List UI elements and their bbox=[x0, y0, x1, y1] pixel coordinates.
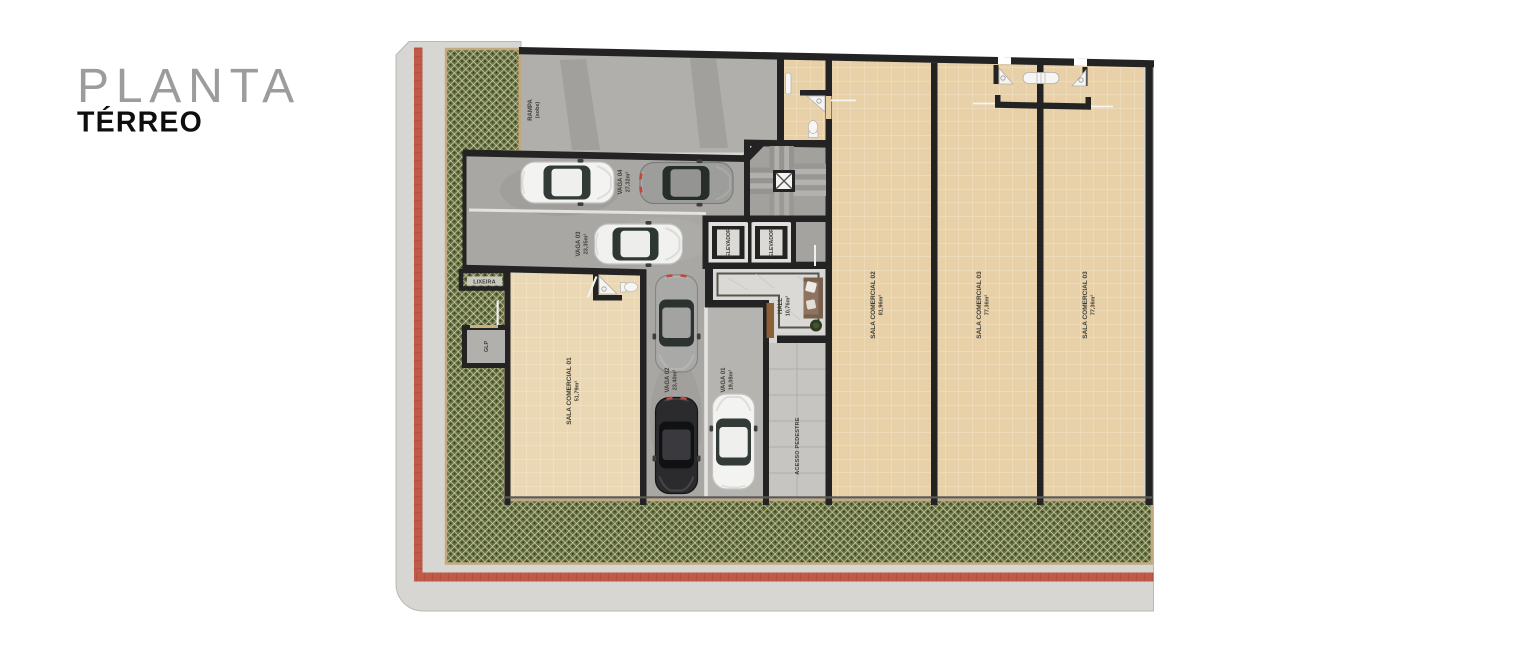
svg-text:51,79m²: 51,79m² bbox=[574, 381, 581, 402]
svg-text:27,32m²: 27,32m² bbox=[625, 172, 632, 193]
svg-text:VAGA 04: VAGA 04 bbox=[618, 169, 624, 195]
svg-text:SALA COMERCIAL 02: SALA COMERCIAL 02 bbox=[870, 271, 877, 339]
svg-text:HALL: HALL bbox=[778, 298, 784, 314]
svg-text:77,36m²: 77,36m² bbox=[984, 295, 991, 316]
svg-text:81,96m²: 81,96m² bbox=[878, 295, 885, 316]
svg-text:SALA COMERCIAL 01: SALA COMERCIAL 01 bbox=[566, 357, 573, 425]
svg-text:77,36m²: 77,36m² bbox=[1090, 295, 1097, 316]
svg-text:SALA COMERCIAL 03: SALA COMERCIAL 03 bbox=[1082, 271, 1089, 339]
svg-text:PLANTA: PLANTA bbox=[77, 60, 301, 113]
svg-text:10,76m²: 10,76m² bbox=[785, 296, 792, 317]
svg-text:(sobe): (sobe) bbox=[535, 102, 541, 119]
svg-text:TÉRREO: TÉRREO bbox=[77, 107, 203, 139]
svg-text:GLP: GLP bbox=[484, 341, 490, 353]
svg-text:23,40m²: 23,40m² bbox=[672, 370, 679, 391]
svg-text:VAGA 01: VAGA 01 bbox=[721, 367, 727, 393]
svg-text:23,35m²: 23,35m² bbox=[583, 234, 590, 255]
svg-text:VAGA 02: VAGA 02 bbox=[665, 367, 671, 393]
svg-text:LIXEIRA: LIXEIRA bbox=[473, 280, 495, 286]
svg-text:ELEVADOR: ELEVADOR bbox=[769, 228, 775, 257]
svg-text:19,08m²: 19,08m² bbox=[728, 370, 735, 391]
svg-text:ELEVADOR: ELEVADOR bbox=[726, 228, 732, 257]
svg-text:RAMPA: RAMPA bbox=[528, 99, 534, 121]
svg-text:SALA COMERCIAL 03: SALA COMERCIAL 03 bbox=[976, 271, 983, 339]
svg-text:ACESSO PEDESTRE: ACESSO PEDESTRE bbox=[795, 417, 801, 475]
svg-text:VAGA 03: VAGA 03 bbox=[576, 231, 582, 257]
